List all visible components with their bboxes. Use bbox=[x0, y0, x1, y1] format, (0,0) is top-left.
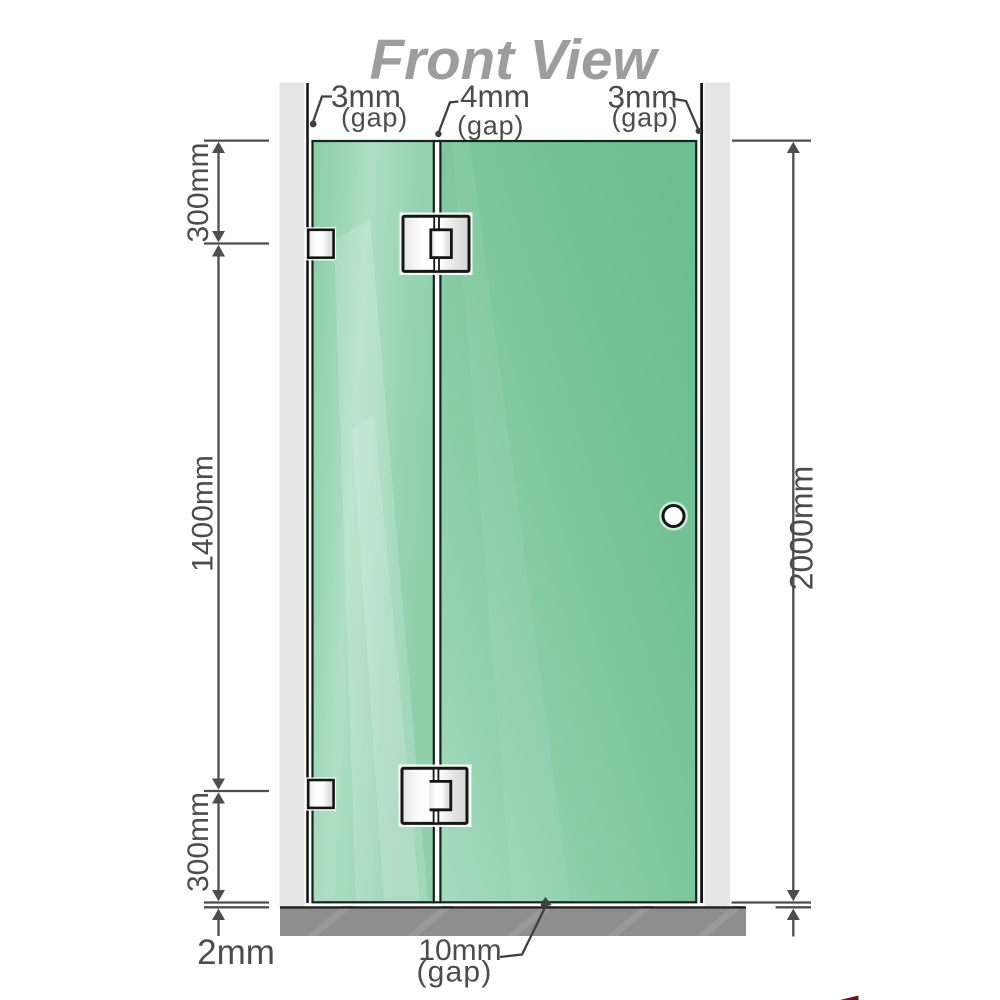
svg-text:1400mm: 1400mm bbox=[187, 455, 220, 572]
svg-text:2mm: 2mm bbox=[197, 933, 275, 972]
svg-text:4mm: 4mm bbox=[460, 78, 530, 114]
svg-text:(gap): (gap) bbox=[341, 103, 408, 133]
svg-text:(gap): (gap) bbox=[611, 103, 678, 133]
svg-text:(gap): (gap) bbox=[457, 111, 524, 141]
svg-text:300mm: 300mm bbox=[182, 142, 215, 242]
svg-text:(gap): (gap) bbox=[416, 956, 492, 989]
svg-text:2000mm: 2000mm bbox=[783, 466, 819, 591]
svg-text:300mm: 300mm bbox=[182, 792, 215, 892]
